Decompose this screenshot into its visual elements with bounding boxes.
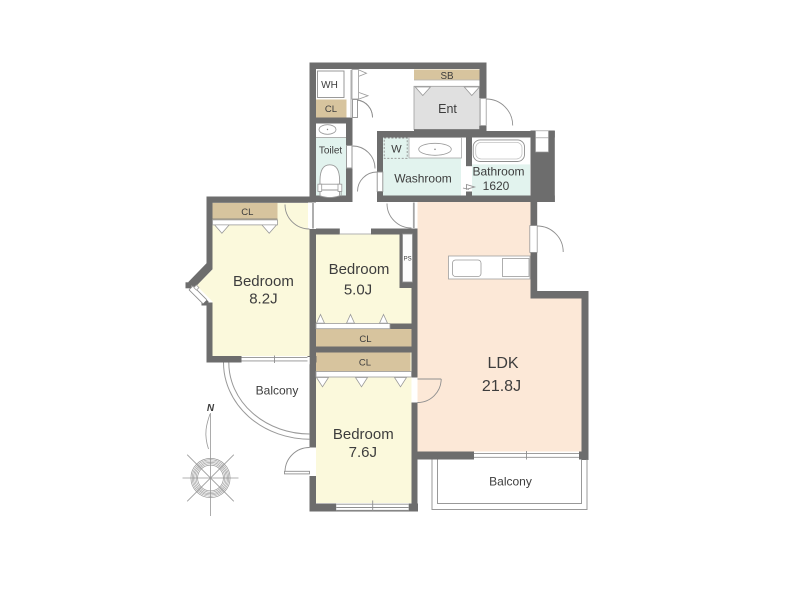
svg-text:Washroom: Washroom — [394, 172, 452, 186]
svg-text:CL: CL — [325, 104, 337, 115]
svg-text:Bedroom: Bedroom — [233, 273, 294, 290]
svg-text:CL: CL — [359, 334, 371, 345]
svg-text:Toilet: Toilet — [319, 146, 343, 157]
svg-text:CL: CL — [241, 207, 253, 218]
svg-text:Bedroom: Bedroom — [329, 261, 390, 278]
svg-text:Bedroom: Bedroom — [333, 426, 394, 443]
svg-text:Ent: Ent — [438, 102, 457, 116]
svg-text:1620: 1620 — [483, 179, 510, 193]
svg-text:7.6J: 7.6J — [349, 444, 377, 461]
svg-text:Balcony: Balcony — [489, 475, 532, 489]
svg-text:CL: CL — [359, 358, 371, 369]
svg-text:WH: WH — [321, 80, 338, 91]
svg-text:Bathroom: Bathroom — [472, 164, 524, 178]
svg-text:Balcony: Balcony — [256, 384, 299, 398]
svg-text:8.2J: 8.2J — [249, 291, 277, 308]
svg-text:5.0J: 5.0J — [344, 282, 372, 299]
svg-text:PS: PS — [404, 257, 412, 263]
svg-text:SB: SB — [440, 71, 454, 82]
svg-text:21.8J: 21.8J — [482, 378, 521, 395]
svg-text:N: N — [207, 403, 215, 414]
svg-text:LDK: LDK — [487, 355, 518, 372]
svg-text:W: W — [391, 144, 402, 156]
